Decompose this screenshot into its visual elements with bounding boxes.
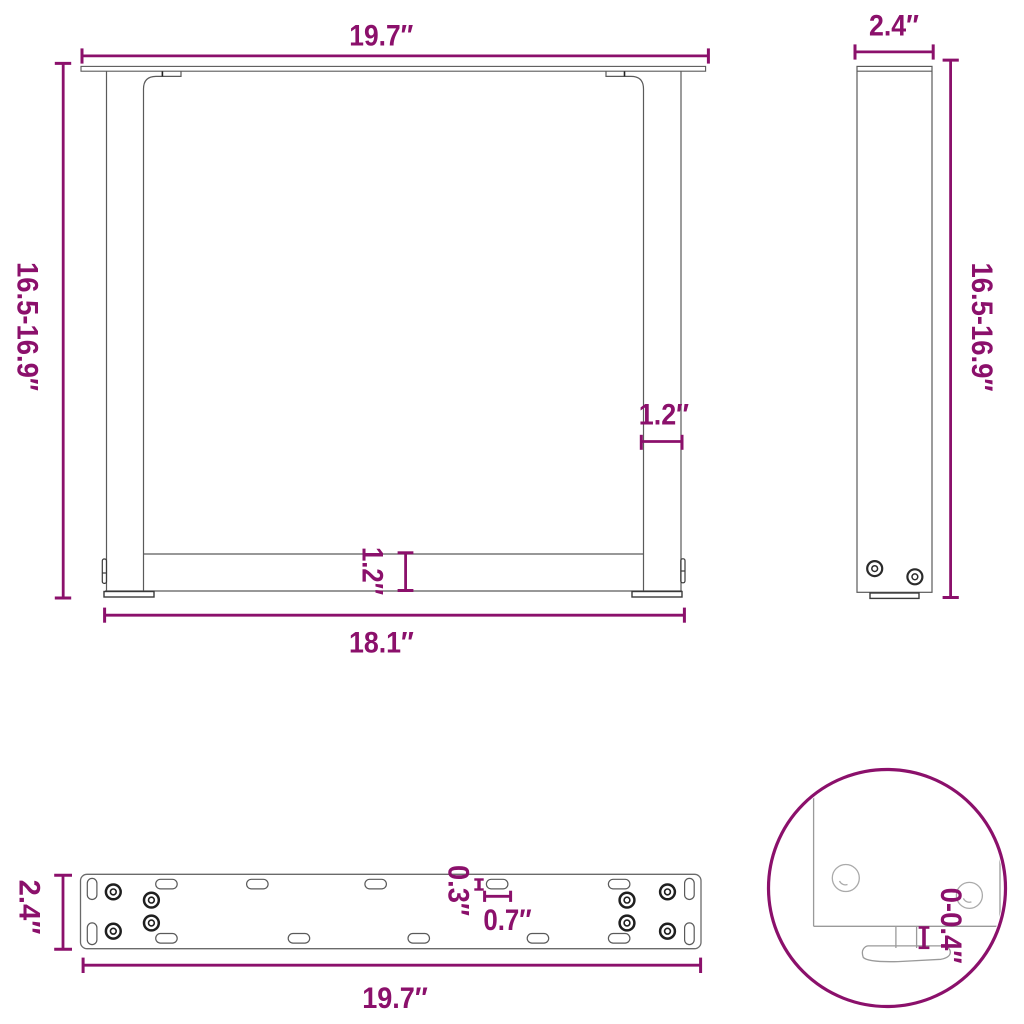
svg-text:0.7″: 0.7″ [483, 904, 531, 937]
svg-text:1.2″: 1.2″ [356, 547, 389, 595]
svg-text:1.2″: 1.2″ [639, 399, 689, 432]
svg-text:0-0.4″: 0-0.4″ [934, 888, 967, 964]
svg-text:2.4″: 2.4″ [869, 10, 919, 43]
svg-text:16.5-16.9″: 16.5-16.9″ [11, 262, 44, 391]
svg-text:2.4″: 2.4″ [13, 880, 46, 935]
svg-text:0.3″: 0.3″ [442, 865, 475, 916]
svg-text:16.5-16.9″: 16.5-16.9″ [965, 263, 998, 392]
svg-text:19.7″: 19.7″ [362, 982, 428, 1015]
svg-text:19.7″: 19.7″ [349, 19, 413, 52]
svg-text:18.1″: 18.1″ [349, 626, 414, 659]
